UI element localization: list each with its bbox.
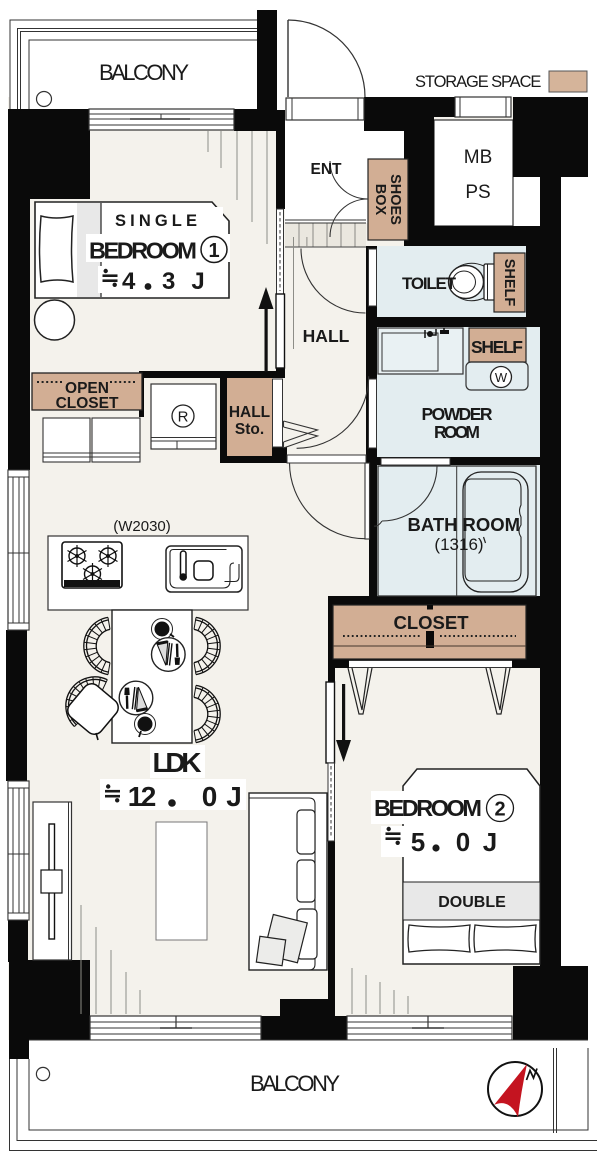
svg-text:4: 4 [122, 268, 136, 295]
svg-text:0: 0 [202, 781, 218, 812]
svg-text:CLOSET: CLOSET [393, 612, 469, 633]
svg-text:TOILET: TOILET [402, 274, 457, 293]
svg-text:SHELF: SHELF [471, 337, 523, 357]
svg-text:BATH: BATH [407, 514, 457, 535]
svg-text:SHELF: SHELF [501, 259, 517, 307]
svg-text:2: 2 [494, 799, 505, 821]
svg-text:HALL: HALL [303, 326, 350, 346]
svg-text:5: 5 [411, 827, 425, 857]
svg-text:J: J [226, 781, 242, 812]
svg-text:0: 0 [456, 827, 470, 857]
svg-text:ENT: ENT [311, 161, 343, 178]
svg-text:Sto.: Sto. [235, 421, 264, 438]
svg-text:3: 3 [162, 268, 175, 295]
svg-text:1: 1 [208, 240, 219, 262]
svg-text:(1316): (1316) [434, 535, 483, 554]
svg-text:(W2030): (W2030) [113, 518, 171, 535]
svg-text:W: W [495, 370, 508, 385]
svg-text:BOX: BOX [372, 184, 388, 216]
svg-text:CLOSET: CLOSET [56, 395, 119, 412]
svg-text:HALL: HALL [229, 404, 270, 421]
svg-text:ROOM: ROOM [463, 514, 521, 535]
svg-text:2: 2 [141, 781, 157, 812]
svg-text:STORAGE SPACE: STORAGE SPACE [415, 73, 542, 91]
svg-text:POWDER: POWDER [422, 404, 493, 424]
svg-text:J: J [191, 268, 204, 295]
svg-text:BEDROOM: BEDROOM [89, 238, 197, 264]
svg-text:BALCONY: BALCONY [99, 60, 189, 85]
svg-text:ROOM: ROOM [434, 422, 480, 442]
svg-text:SHOES: SHOES [387, 174, 403, 225]
svg-text:LDK: LDK [153, 747, 202, 778]
svg-text:J: J [483, 827, 497, 857]
svg-text:DOUBLE: DOUBLE [438, 894, 506, 911]
svg-text:PS: PS [465, 182, 490, 203]
svg-text:BEDROOM: BEDROOM [374, 795, 482, 821]
svg-text:BALCONY: BALCONY [250, 1071, 340, 1096]
svg-text:MB: MB [464, 147, 493, 168]
svg-text:R: R [178, 409, 189, 426]
